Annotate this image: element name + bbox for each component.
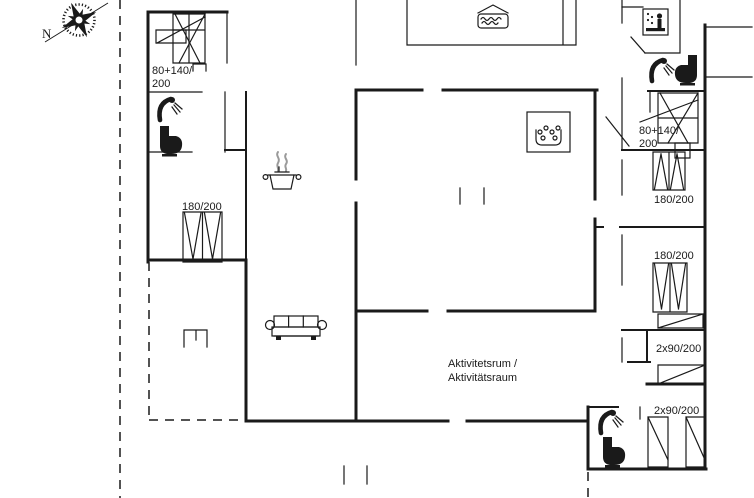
- sofa-icon: [266, 316, 327, 340]
- bed-size-label: 80+140/: [152, 65, 193, 77]
- dresser-icon: [658, 365, 705, 384]
- room-label-line2: Aktivitätsraum: [448, 372, 517, 384]
- shower-icon: [600, 410, 623, 433]
- bed-size-label: 180/200: [182, 201, 222, 213]
- north-label: N: [42, 26, 52, 41]
- double-bed-icon: [653, 263, 687, 312]
- bed-size-label: 2x90/200: [654, 405, 699, 417]
- bed-size-label: 2x90/200: [656, 343, 701, 355]
- shower-icon: [651, 58, 674, 81]
- bed-size-label: 80+140/: [639, 125, 680, 137]
- toilet-icon: [160, 126, 182, 157]
- bed-size-label: 200: [639, 138, 657, 150]
- single-bed-icon: [686, 417, 705, 467]
- bed-size-label: 200: [152, 78, 170, 90]
- activity-room-label: Aktivitetsrum / Aktivitätsraum: [448, 358, 518, 384]
- shower-icon: [159, 97, 182, 120]
- sauna-icon: [643, 9, 668, 35]
- double-bed-icon: [183, 212, 222, 262]
- bed-size-label: 180/200: [654, 194, 694, 206]
- single-bed-icon: [648, 417, 668, 467]
- toilet-icon: [675, 55, 697, 86]
- room-label-line1: Aktivitetsrum /: [448, 358, 518, 370]
- spa-bath-icon: [527, 112, 570, 152]
- stove-pot-icon: [263, 152, 301, 189]
- floor-plan-canvas: N: [0, 0, 754, 498]
- dresser-icon: [658, 314, 703, 328]
- compass-rose-icon: N: [42, 0, 108, 45]
- bunk-bed-icon: [156, 14, 205, 63]
- floor-plan: N: [0, 0, 754, 498]
- bed-size-label: 180/200: [654, 250, 694, 262]
- toilet-icon: [603, 437, 625, 468]
- whirlpool-tub-icon: [478, 5, 508, 28]
- grill-icon: [184, 330, 207, 347]
